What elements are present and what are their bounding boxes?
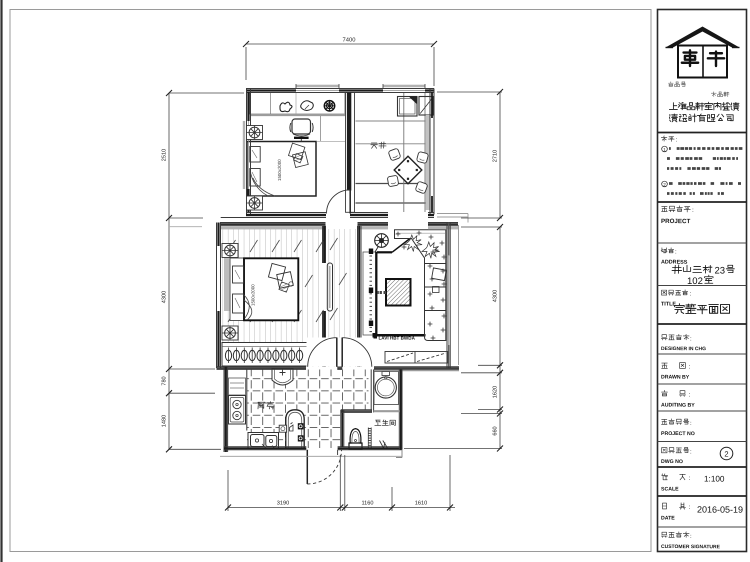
svg-text::: : xyxy=(688,475,690,482)
svg-text:DATE: DATE xyxy=(661,516,675,522)
svg-text:ADDRESS: ADDRESS xyxy=(661,260,688,266)
svg-text:2710: 2710 xyxy=(492,150,498,162)
svg-text::: : xyxy=(692,207,694,214)
svg-text:SCALE: SCALE xyxy=(661,487,679,493)
svg-text:1610: 1610 xyxy=(415,500,427,506)
svg-text:1500x2000: 1500x2000 xyxy=(277,159,282,181)
svg-text:1:100: 1:100 xyxy=(704,475,725,484)
svg-text:DESIGNER IN CHG: DESIGNER IN CHG xyxy=(661,346,706,352)
svg-text:23: 23 xyxy=(714,266,725,277)
svg-text:CUSTOMER SIGNATURE: CUSTOMER SIGNATURE xyxy=(661,544,721,550)
svg-text::: : xyxy=(688,392,690,399)
svg-text:4300: 4300 xyxy=(161,291,167,303)
svg-text:2: 2 xyxy=(724,449,728,458)
svg-text:2510: 2510 xyxy=(161,149,167,161)
svg-text:AUDITING BY: AUDITING BY xyxy=(661,403,695,409)
svg-text:DWG NO: DWG NO xyxy=(661,459,683,465)
svg-text:4300: 4300 xyxy=(492,290,498,302)
svg-text::: : xyxy=(688,504,690,511)
svg-text:780: 780 xyxy=(161,376,167,385)
svg-text:1500x2000: 1500x2000 xyxy=(250,284,255,306)
svg-text:LAVI HBT BWDA: LAVI HBT BWDA xyxy=(378,336,415,341)
svg-text:1480: 1480 xyxy=(161,415,167,427)
svg-text:7400: 7400 xyxy=(343,37,356,43)
svg-text:DRAWN BY: DRAWN BY xyxy=(661,375,690,381)
svg-text:1620: 1620 xyxy=(492,386,498,398)
svg-text:TITLE: TITLE xyxy=(661,302,676,308)
svg-text:PROJECT NO: PROJECT NO xyxy=(661,431,695,437)
svg-text:2016-05-19: 2016-05-19 xyxy=(697,505,743,515)
svg-text:PROJECT: PROJECT xyxy=(661,218,690,225)
svg-text:102: 102 xyxy=(687,276,703,287)
svg-text::: : xyxy=(688,364,690,371)
svg-text:660: 660 xyxy=(492,426,498,435)
svg-text:3190: 3190 xyxy=(277,500,289,506)
svg-text:1160: 1160 xyxy=(361,500,373,506)
